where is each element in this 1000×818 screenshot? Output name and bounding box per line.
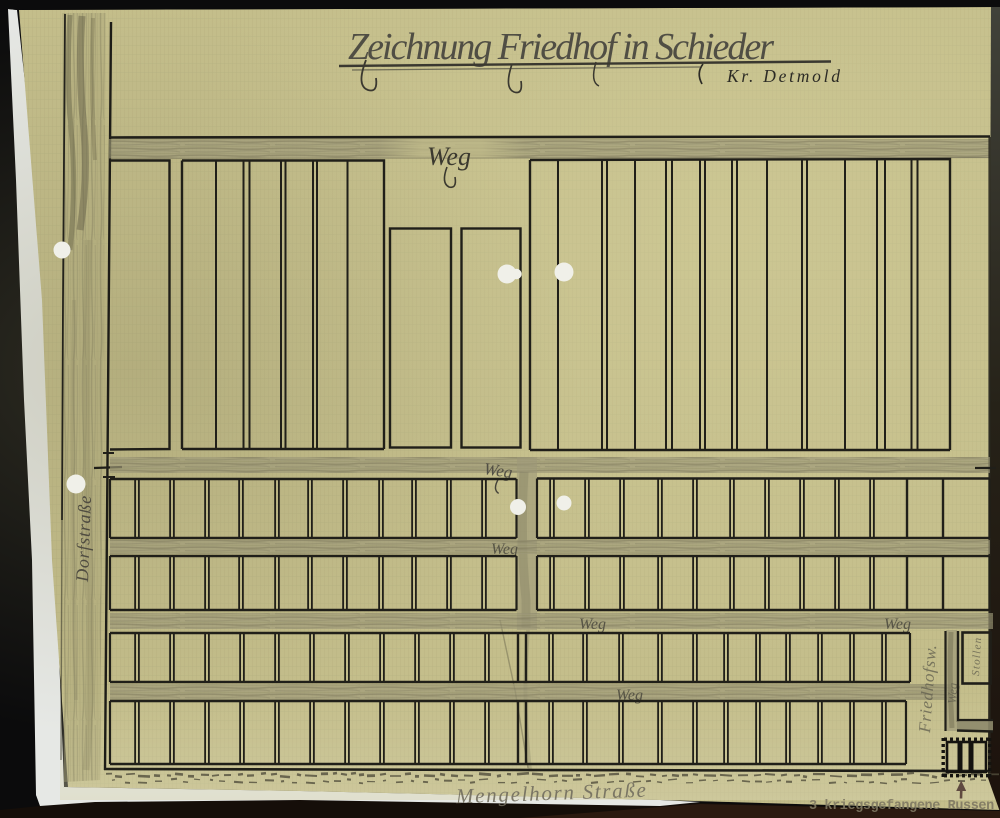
svg-text:Weg: Weg <box>579 616 606 633</box>
svg-text:Weg: Weg <box>884 616 911 633</box>
svg-text:Kr. Detmold: Kr. Detmold <box>726 66 840 86</box>
svg-text:3 kriegsgefangene Russen: 3 kriegsgefangene Russen <box>809 799 994 814</box>
svg-text:Dorfstraße: Dorfstraße <box>72 495 95 583</box>
svg-text:Weg: Weg <box>427 142 471 171</box>
